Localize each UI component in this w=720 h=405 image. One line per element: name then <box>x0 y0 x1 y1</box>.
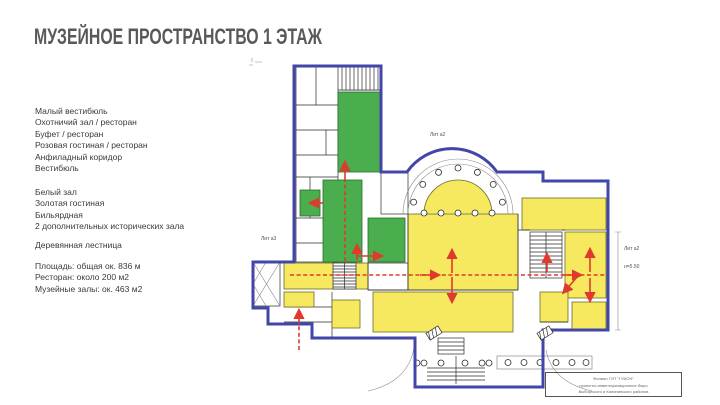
bti-stamp-box: Филиал ГУП "ГУИОН" проектно-инвентаризац… <box>545 372 682 397</box>
label-lit-a2-top: Лит а2 <box>430 132 445 138</box>
room-white-hall <box>408 214 518 290</box>
room-buffet <box>323 180 362 262</box>
room-vestibule <box>284 292 314 307</box>
room-golden-drawing-room <box>373 292 513 332</box>
room-billiard <box>522 198 606 230</box>
dimension-line <box>615 232 621 330</box>
label-lit-a2-right: Лит а2 <box>624 246 639 252</box>
room-white-hall-apse <box>424 180 492 214</box>
room-small-hall <box>332 300 360 328</box>
label-lit-a3-left: Лит а3 <box>261 236 276 242</box>
label-height-mark: н=5.50 <box>624 264 639 270</box>
room-historic-hall-1 <box>565 232 606 298</box>
survey-ticks <box>249 58 262 65</box>
room-hunting-hall <box>338 92 380 172</box>
floor-plan-svg <box>0 0 720 405</box>
room-historic-hall-2 <box>540 292 568 322</box>
room-historic-hall-3 <box>572 302 606 330</box>
slide: МУЗЕЙНОЕ ПРОСТРАНСТВО 1 ЭТАЖ Малый вести… <box>0 0 720 405</box>
stamp-line: Выборгского и Калининского районов <box>546 389 681 396</box>
